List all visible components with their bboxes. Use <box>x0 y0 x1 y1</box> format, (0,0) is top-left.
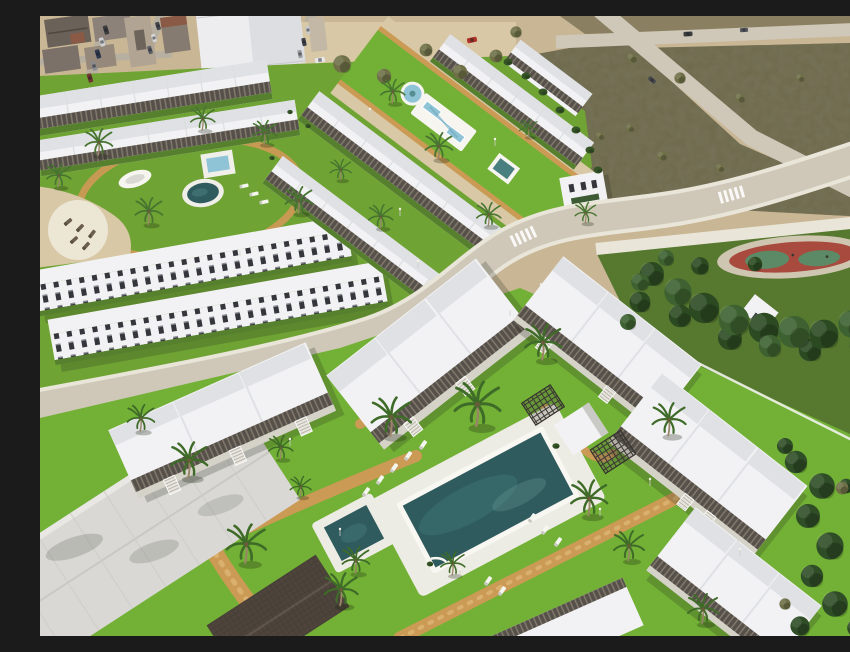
town-building <box>70 32 85 44</box>
hedge-shrub <box>305 124 310 128</box>
olive-tree <box>596 132 604 140</box>
square-pool <box>200 150 235 179</box>
park-tree <box>658 250 674 266</box>
park-tree <box>620 314 636 330</box>
olive-tree <box>377 69 391 83</box>
olive-tree <box>490 50 503 63</box>
olive-tree <box>796 74 804 82</box>
park-tree <box>664 278 691 305</box>
roadside-tree <box>801 565 823 587</box>
parked-car <box>740 28 748 33</box>
town-building <box>160 16 191 54</box>
hedge-shrub <box>522 73 531 80</box>
aerial-render: Aerial 3D architectural rendering of a w… <box>40 16 850 636</box>
hedge-shrub <box>427 562 433 567</box>
hedge-shrub <box>552 443 559 449</box>
hedge-shrub <box>287 110 292 114</box>
park-tree <box>689 293 719 323</box>
park-tree <box>691 257 709 275</box>
scene-canvas <box>40 16 850 636</box>
olive-tree <box>453 65 467 79</box>
olive-tree <box>657 151 667 161</box>
parked-car <box>683 31 692 36</box>
olive-tree <box>735 93 745 103</box>
olive-tree <box>333 55 351 73</box>
park-tree <box>669 305 691 327</box>
roadside-tree <box>777 438 793 454</box>
olive-tree <box>716 164 724 172</box>
roadside-tree <box>809 473 835 499</box>
park-tree <box>778 316 810 348</box>
roadside-tree <box>822 591 848 617</box>
hedge-shrub <box>556 107 565 114</box>
park-tree <box>719 305 749 335</box>
hedge-shrub <box>504 59 513 66</box>
roadside-tree <box>790 616 809 635</box>
olive-tree <box>510 26 521 37</box>
olive-tree <box>779 598 790 609</box>
park-tree <box>630 292 651 313</box>
hedge-shrub <box>594 167 603 174</box>
olive-tree <box>674 72 685 83</box>
hedge-shrub <box>269 156 274 160</box>
olive-tree <box>836 482 849 495</box>
hedge-shrub <box>586 147 595 154</box>
hedge-shrub <box>572 127 581 134</box>
olive-tree <box>626 124 634 132</box>
park-tree <box>748 257 762 271</box>
hedge-shrub <box>539 89 548 96</box>
roadside-tree <box>816 532 843 559</box>
roadside-tree <box>796 504 820 528</box>
park-tree <box>759 335 781 357</box>
park-tree <box>631 273 649 291</box>
olive-tree <box>420 44 433 57</box>
roadside-tree <box>785 451 807 473</box>
olive-tree <box>627 53 637 63</box>
town-building <box>42 45 81 74</box>
